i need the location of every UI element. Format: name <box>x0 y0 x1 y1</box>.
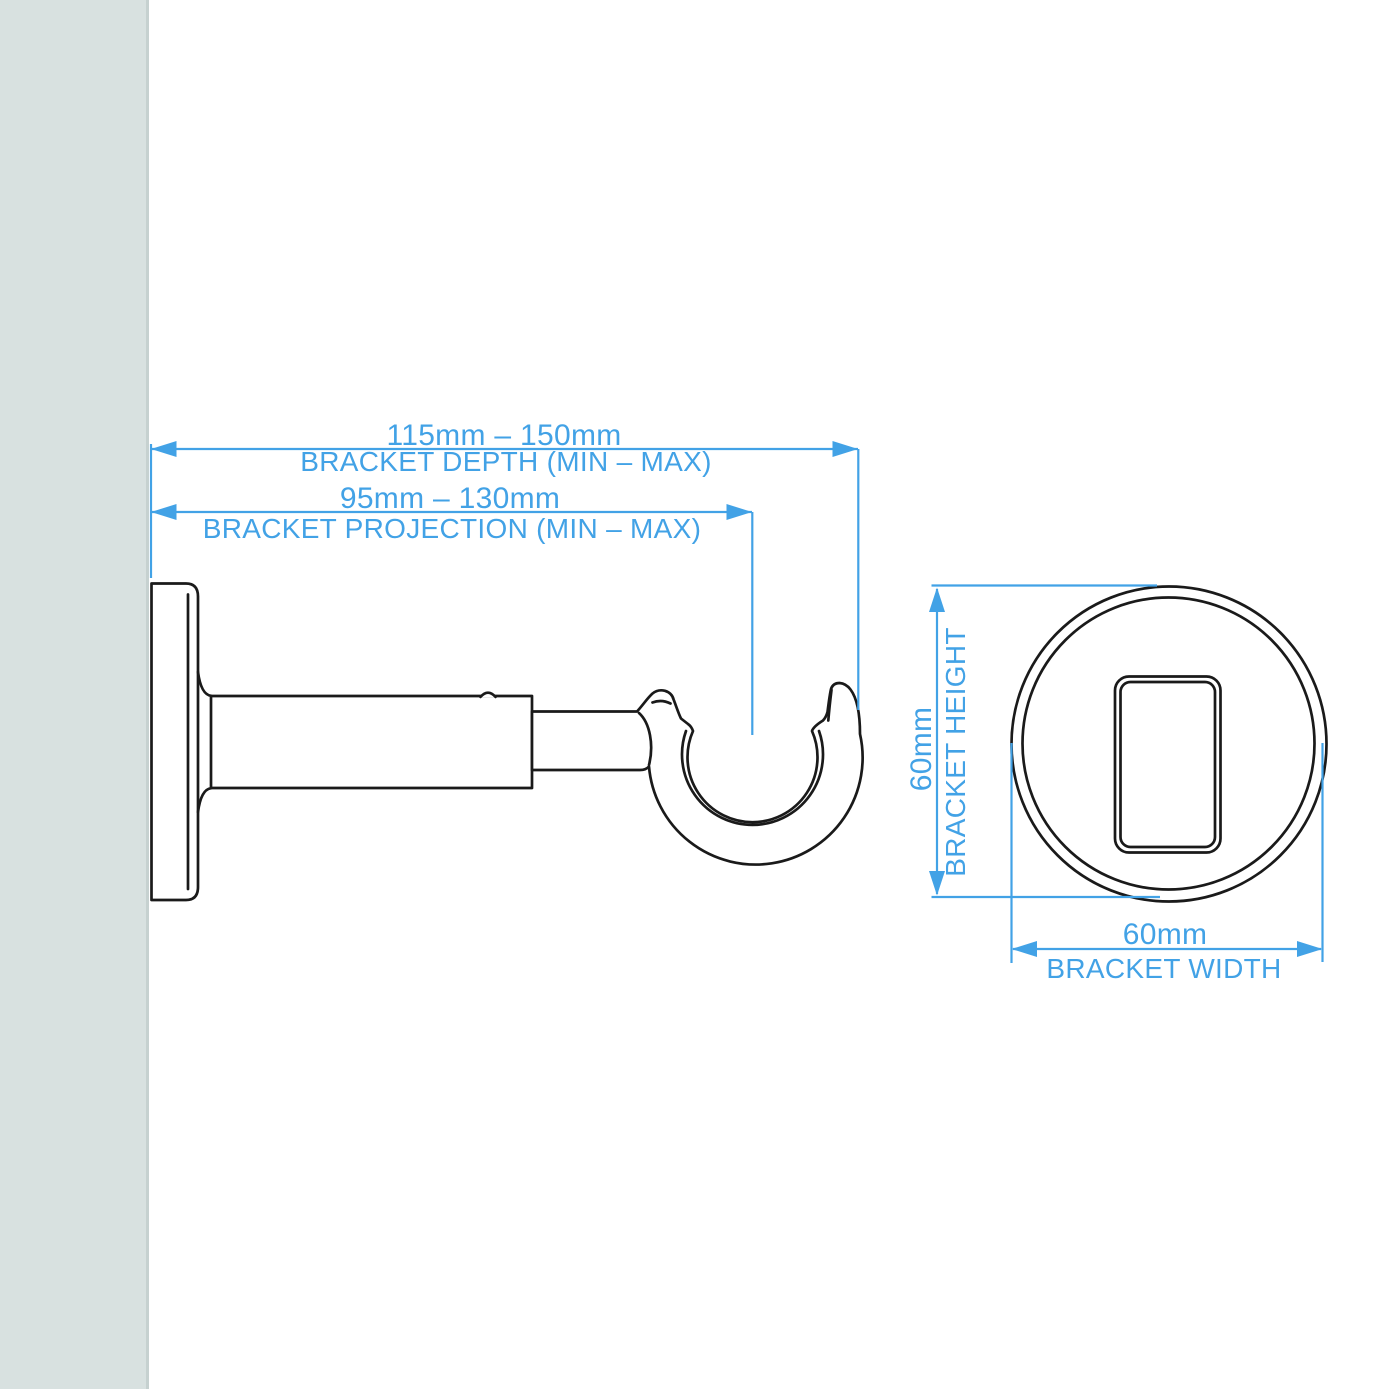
depth-label: BRACKET DEPTH (MIN – MAX) <box>300 448 711 476</box>
width-arrow-right <box>1297 941 1323 957</box>
height-value: 60mm <box>907 707 937 792</box>
neck-flare-bottom <box>198 788 211 812</box>
bracket-arm-cylinder <box>211 696 532 788</box>
depth-arrow-left <box>151 441 177 457</box>
projection-arrow-right <box>727 504 753 520</box>
bracket-dimension-diagram: 115mm – 150mm BRACKET DEPTH (MIN – MAX) … <box>0 0 1389 1389</box>
technical-drawing <box>0 0 1389 1389</box>
height-label: BRACKET HEIGHT <box>942 627 970 877</box>
wall-plate <box>152 584 199 901</box>
width-value: 60mm <box>1123 920 1208 950</box>
neck-flare-top <box>198 672 211 696</box>
side-view-bracket <box>152 584 863 901</box>
front-view-bracket <box>1012 587 1327 902</box>
projection-value: 95mm – 130mm <box>340 484 560 514</box>
arm-slot-outer <box>1115 677 1221 853</box>
projection-arrow-left <box>151 504 177 520</box>
stem-and-rod-cup <box>532 683 863 865</box>
width-label: BRACKET WIDTH <box>1046 955 1281 983</box>
height-arrow-top <box>929 588 945 613</box>
width-arrow-left <box>1012 941 1038 957</box>
projection-label: BRACKET PROJECTION (MIN – MAX) <box>203 515 702 543</box>
depth-arrow-right <box>833 441 859 457</box>
